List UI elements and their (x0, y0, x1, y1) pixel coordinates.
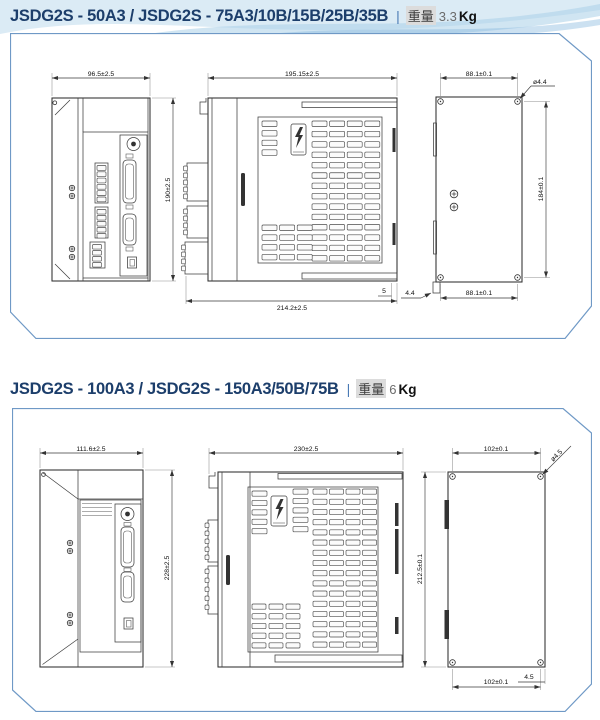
mounting-hole (450, 474, 456, 480)
dim-front1-width: 96.5±2.5 (88, 71, 115, 78)
weight-label-2: 重量 (356, 379, 386, 398)
weight-label-1: 重量 (406, 6, 436, 25)
section-title-2: JSDG2S - 100A3 / JSDG2S - 150A3/50B/75B … (10, 379, 416, 399)
screw-icon (67, 540, 72, 545)
screw-icon (450, 203, 458, 211)
model-name-1: JSDG2S - 50A3 / JSDG2S - 75A3/10B/15B/25… (10, 7, 388, 26)
dim-back1-hole: ø4.4 (533, 79, 547, 86)
weight-value-2: 6 (389, 382, 396, 397)
dim-side2-width-top: 230±2.5 (294, 446, 319, 453)
dimension-drawing-panel-1: 96.5±2.5 190±2.5 (10, 33, 592, 339)
mounting-hole (515, 275, 521, 281)
screw-icon (69, 254, 74, 259)
panel-border-2 (13, 409, 592, 712)
mounting-hole (538, 660, 544, 666)
screw-icon (450, 190, 458, 198)
weight-unit-1: Kg (459, 9, 477, 24)
screw-icon (67, 548, 72, 553)
section-title-1: JSDG2S - 50A3 / JSDG2S - 75A3/10B/15B/25… (10, 6, 477, 26)
dim-front2-width: 111.6±2.5 (76, 446, 105, 453)
dim-side1-flange: 5 (382, 288, 386, 295)
model-name-2: JSDG2S - 100A3 / JSDG2S - 150A3/50B/75B (10, 380, 339, 399)
screw-icon (69, 246, 74, 251)
handle-slot (226, 555, 230, 585)
dim-back2-tab: 4.5 (524, 674, 534, 681)
dim-back1-width-bottom: 88.1±0.1 (466, 290, 493, 297)
mounting-hole (450, 660, 456, 666)
mounting-hole (515, 99, 521, 105)
dim-back2-width-top: 102±0.1 (484, 446, 509, 453)
weight-value-1: 3.3 (439, 9, 457, 24)
screw-icon (67, 612, 72, 617)
dim-back1-width-top: 88.1±0.1 (466, 71, 493, 78)
dim-side1-width-top: 195.15±2.5 (285, 71, 319, 78)
mounting-hole (438, 99, 444, 105)
mounting-hole (538, 474, 544, 480)
dim-back1-tab: 4.4 (405, 290, 415, 297)
dim-back2-height: 212.5±0.1 (417, 554, 424, 584)
weight-unit-2: Kg (398, 382, 416, 397)
title-divider-2: | (347, 381, 351, 397)
catalog-page: JSDG2S - 50A3 / JSDG2S - 75A3/10B/15B/25… (0, 0, 600, 720)
dimension-drawing-panel-2: 111.6±2.5 228±2.5 (12, 408, 592, 712)
screw-icon (67, 620, 72, 625)
dim-front1-height: 190±2.5 (165, 178, 172, 203)
dim-back2-width-bottom: 102±0.1 (484, 679, 509, 686)
handle-slot (241, 173, 245, 206)
dim-front2-height: 228±2.5 (164, 556, 171, 581)
dim-back1-height: 184±0.1 (538, 177, 545, 202)
title-divider-1: | (396, 8, 400, 24)
dim-side1-width-bottom: 214.2±2.5 (277, 305, 307, 312)
screw-icon (69, 193, 74, 198)
screw-icon (69, 185, 74, 190)
mounting-hole (438, 275, 444, 281)
